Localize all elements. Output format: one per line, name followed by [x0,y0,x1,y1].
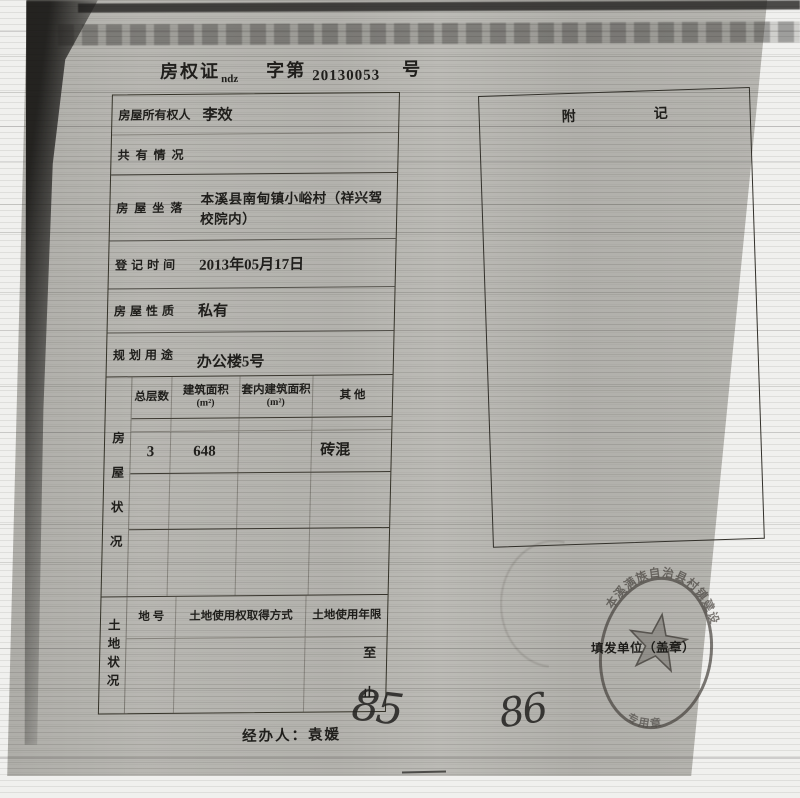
value-other: 砖混 [311,430,391,472]
header-total-floors-text: 总层数 [134,390,169,405]
location-value: 本溪县南甸镇小峪村（祥兴驾校院内） [200,186,391,228]
row-co-ownership: 共有情况 [111,133,398,175]
house-grid-header: 总层数 建筑面积 (m²) 套内建筑面积 (m²) 其 他 [132,375,393,419]
spacer-cell [239,418,312,431]
row-owner: 房屋所有权人 李效 [112,93,399,135]
scanned-certificate-document: 房权证ndz字第20130053号 房屋所有权人 李效 共有情况 房屋坐落 本溪… [0,0,800,798]
header-land-use-term: 土地使用年限 [306,595,388,637]
empty-cell [174,638,306,713]
empty-cell [235,529,309,596]
value-building-area: 648 [171,431,240,473]
empty-cell [129,474,171,529]
certificate-number: 20130053 [312,67,380,84]
header-other: 其 他 [312,375,392,417]
house-nature-label: 房屋性质 [114,302,198,320]
header-other-text: 其 他 [339,389,365,404]
streak-line [0,757,800,759]
appendix-header: 附记 [479,100,750,129]
handwritten-number-left: 85 [349,680,403,736]
appendix-box: 附记 [478,87,765,548]
empty-cell [308,528,389,595]
header-total-floors: 总层数 [132,377,173,418]
streak-line [0,31,800,32]
seal-ring-text-bottom: 专用章 [624,709,666,732]
header-land-right-method: 土地使用权取得方式 [176,596,307,638]
location-label: 房屋坐落 [116,199,200,217]
spacer-cell [312,417,392,430]
land-condition-grid: 地 号 土地使用权取得方式 土地使用年限 至 止 [125,595,388,713]
value-other-text: 砖混 [320,441,350,460]
co-ownership-label: 共有情况 [117,146,201,164]
appendix-header-right: 记 [653,107,667,122]
house-condition-section: 房屋状况 总层数 建筑面积 (m²) 套内建筑面积 (m²) 其 他 [102,375,393,597]
header-inner-area: 套内建筑面积 (m²) [240,376,314,418]
seal-ring-text-top: 本溪满族自治县村镇建设 [602,557,730,628]
house-grid-empty-row [129,472,390,530]
title-suffix: 号 [402,59,422,79]
row-location: 房屋坐落 本溪县南甸镇小峪村（祥兴驾校院内） [110,173,398,241]
value-total-floors: 3 [130,432,171,473]
issuer-label: 填发单位（盖章） [591,636,695,656]
header-inner-area-unit: (m²) [267,397,285,410]
scan-top-band-textured [58,21,800,45]
house-condition-grid: 总层数 建筑面积 (m²) 套内建筑面积 (m²) 其 他 [128,375,393,596]
house-grid-empty-row [128,528,390,596]
header-land-number: 地 号 [127,597,177,638]
svg-text:专用章: 专用章 [624,709,666,732]
empty-cell [310,472,391,528]
header-building-area-text: 建筑面积 [183,383,229,398]
row-house-nature: 房屋性质 私有 [108,287,395,333]
land-grid-header: 地 号 土地使用权取得方式 土地使用年限 [127,595,388,639]
certificate-table: 房屋所有权人 李效 共有情况 房屋坐落 本溪县南甸镇小峪村（祥兴驾校院内） 登记… [98,92,400,714]
land-term-from: 至 [363,645,376,661]
row-registration-date: 登记时间 2013年05月17日 [109,239,396,289]
header-building-area: 建筑面积 (m²) [172,376,241,418]
empty-cell [169,473,238,529]
empty-cell [237,473,311,529]
row-planned-use: 规划用途 办公楼5号 [107,331,394,377]
planned-use-label: 规划用途 [113,346,197,364]
title-subscript: ndz [221,73,238,85]
handler-label: 经办人： [242,728,308,745]
header-inner-area-text: 套内建筑面积 [241,383,310,398]
registration-date-value: 2013年05月17日 [199,252,390,275]
appendix-header-gap [576,118,654,121]
handler-line: 经办人：袁媛 [242,723,341,746]
handler-name: 袁媛 [308,727,341,744]
land-condition-side-label: 土地状况 [99,597,128,713]
house-nature-value: 私有 [198,298,389,321]
header-building-area-unit: (m²) [196,398,214,411]
owner-label: 房屋所有权人 [118,106,202,124]
empty-cell [128,530,170,596]
empty-cell [125,639,176,713]
house-grid-values-row: 3 648 砖混 [130,430,391,474]
appendix-header-left: 附 [562,110,576,125]
spacer-cell [131,419,172,431]
land-grid-body: 至 止 [125,637,387,713]
title-prefix: 房权证 [160,61,220,82]
empty-cell [168,529,237,596]
handwritten-number-right: 86 [496,685,550,738]
title-middle: 字第 [266,60,306,80]
planned-use-value: 办公楼5号 [197,349,388,372]
value-inner-area [238,431,312,473]
certificate-title: 房权证ndz字第20130053号 [160,54,500,84]
co-ownership-value [202,153,392,155]
spacer-cell [172,418,240,431]
owner-value: 李效 [202,102,393,125]
svg-text:本溪满族自治县村镇建设: 本溪满族自治县村镇建设 [602,557,730,628]
registration-date-label: 登记时间 [115,256,199,274]
land-condition-section: 土地状况 地 号 土地使用权取得方式 土地使用年限 至 止 [99,595,388,713]
